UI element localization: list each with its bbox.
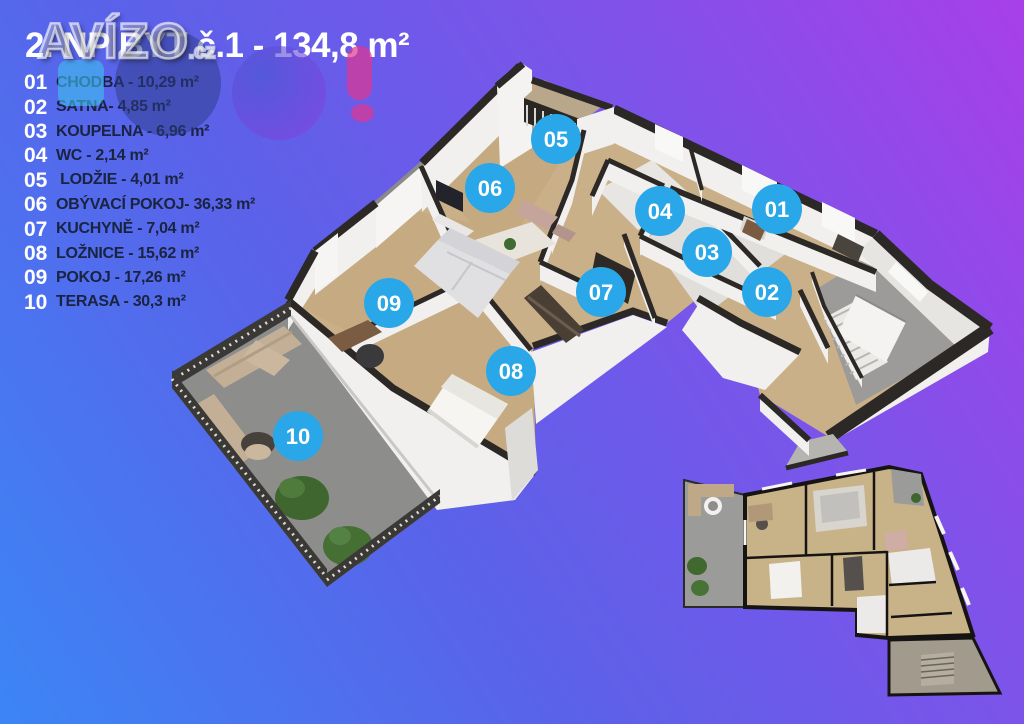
svg-text:03: 03 [695, 240, 719, 265]
svg-text:06: 06 [478, 176, 502, 201]
svg-text:05: 05 [544, 127, 568, 152]
svg-text:10: 10 [286, 424, 310, 449]
svg-text:09: 09 [377, 291, 401, 316]
svg-text:08: 08 [499, 359, 523, 384]
svg-text:07: 07 [589, 280, 613, 305]
svg-text:02: 02 [755, 280, 779, 305]
svg-text:04: 04 [648, 199, 673, 224]
svg-text:01: 01 [765, 197, 789, 222]
